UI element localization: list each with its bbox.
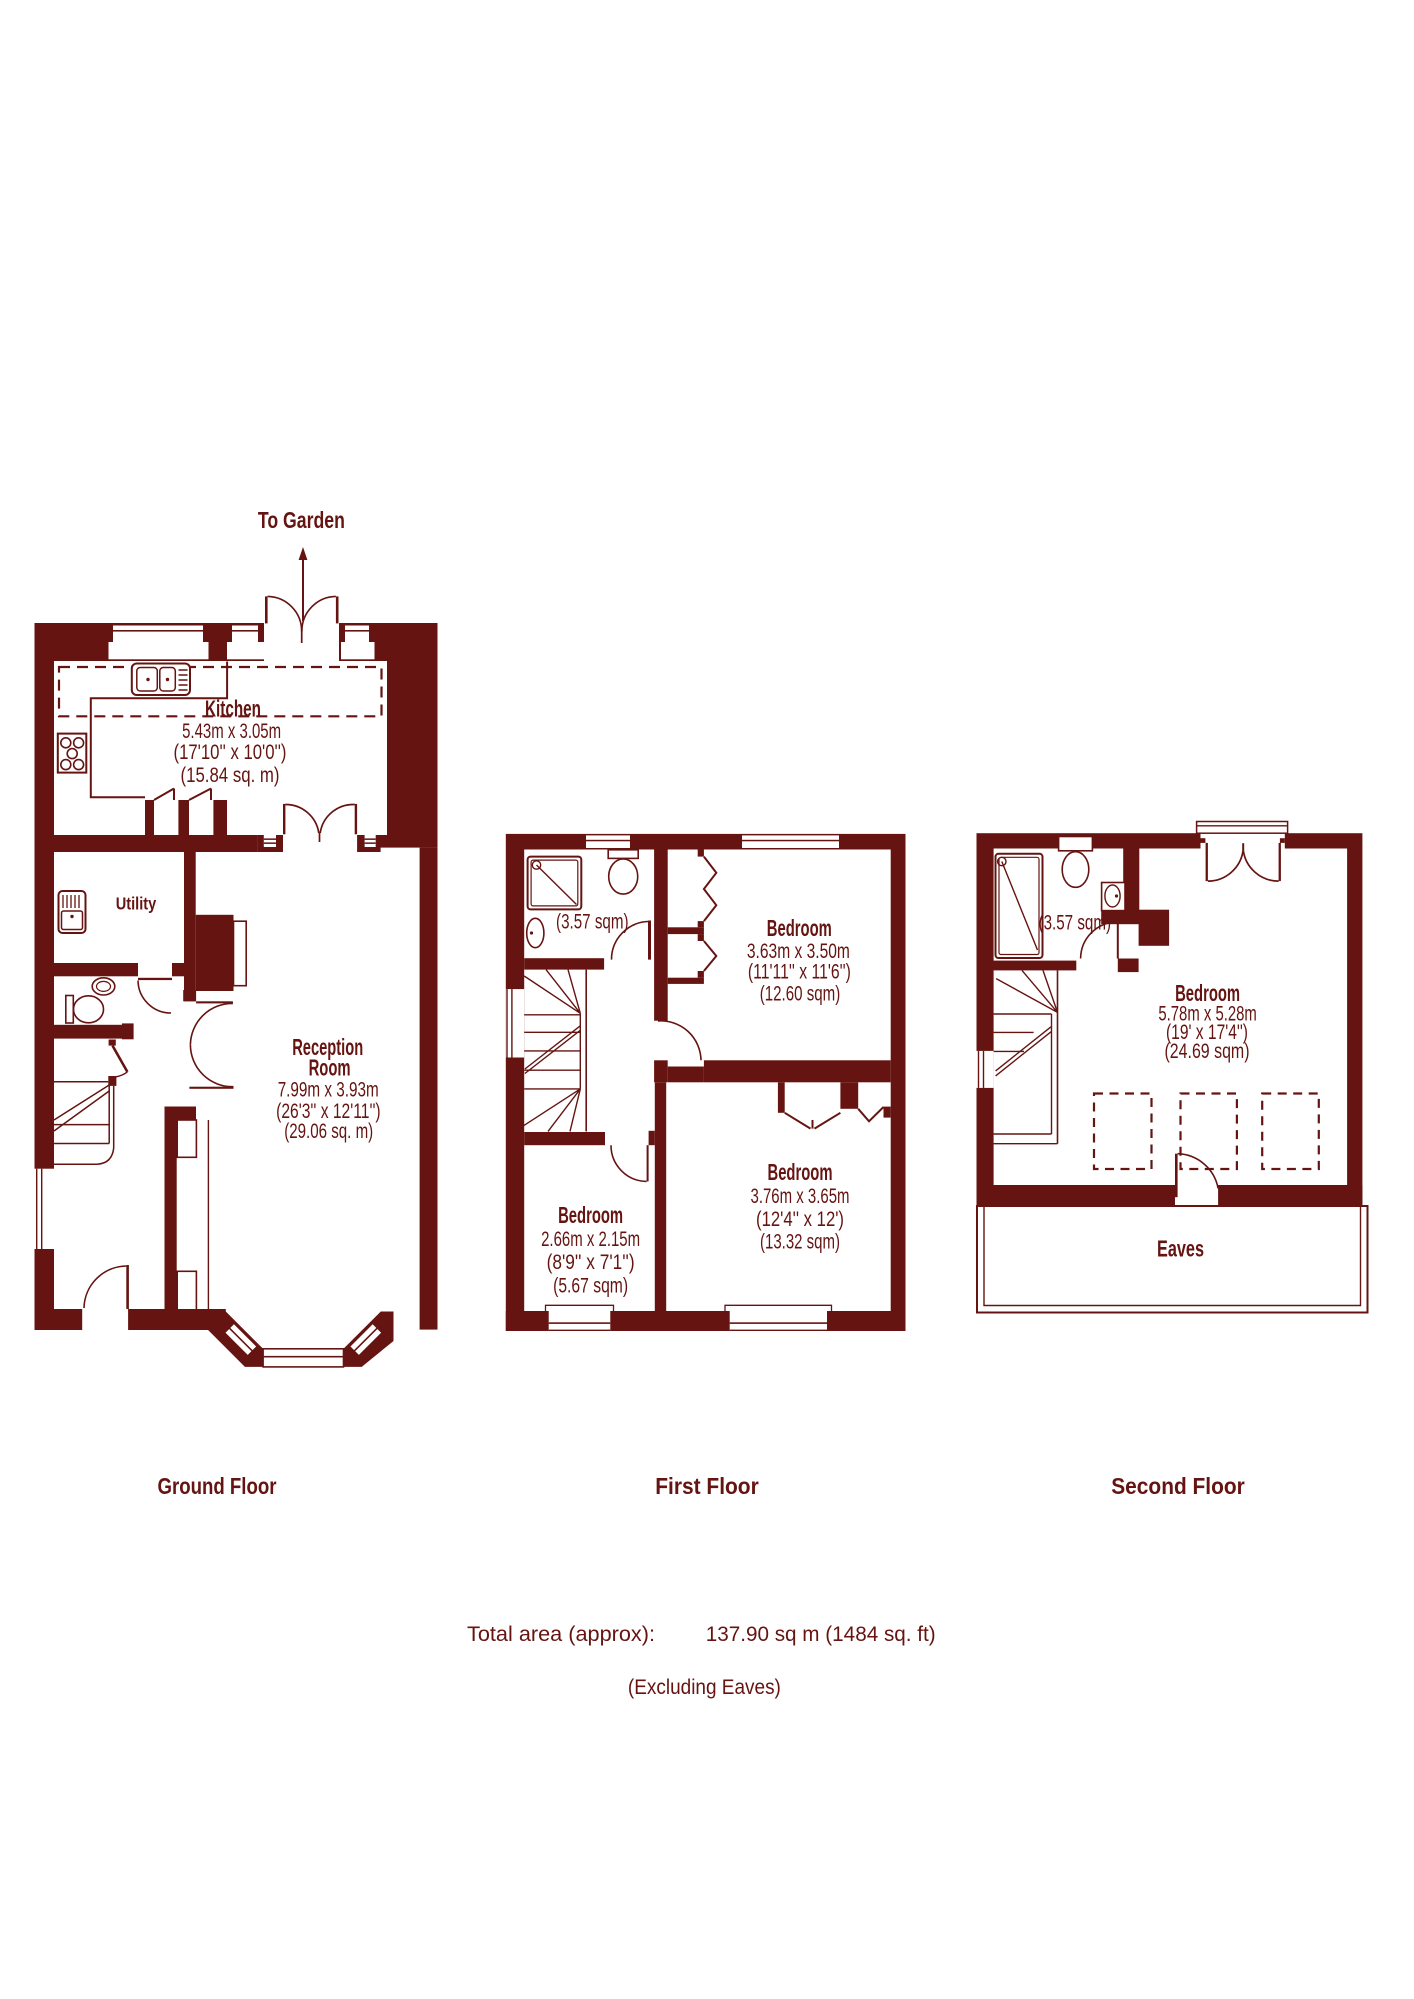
svg-text:(13.32 sqm): (13.32 sqm) <box>760 1231 840 1254</box>
svg-text:137.90 sq m (1484 sq. ft): 137.90 sq m (1484 sq. ft) <box>706 1622 936 1646</box>
svg-text:3.63m x 3.50m: 3.63m x 3.50m <box>747 940 850 963</box>
svg-text:Kitchen: Kitchen <box>205 696 261 722</box>
svg-text:(5.67 sqm): (5.67 sqm) <box>553 1275 628 1298</box>
svg-text:(12.60 sqm): (12.60 sqm) <box>760 983 841 1006</box>
svg-text:(8'9'' x 7'1''): (8'9'' x 7'1'') <box>547 1251 635 1274</box>
svg-text:Bedroom: Bedroom <box>558 1202 623 1228</box>
svg-text:Total area (approx):: Total area (approx): <box>467 1622 655 1646</box>
svg-text:(12'4'' x 12'): (12'4'' x 12') <box>756 1208 844 1231</box>
svg-text:(11'11'' x 11'6''): (11'11'' x 11'6'') <box>748 961 851 984</box>
svg-text:First Floor: First Floor <box>655 1473 759 1499</box>
svg-text:Room: Room <box>309 1055 351 1081</box>
svg-text:7.99m x 3.93m: 7.99m x 3.93m <box>278 1079 379 1102</box>
svg-text:Bedroom: Bedroom <box>768 1159 833 1185</box>
svg-text:(3.57 sqm): (3.57 sqm) <box>556 911 629 934</box>
svg-text:(17'10'' x 10'0''): (17'10'' x 10'0'') <box>174 741 287 764</box>
svg-text:(24.69 sqm): (24.69 sqm) <box>1165 1040 1250 1063</box>
svg-text:3.76m x 3.65m: 3.76m x 3.65m <box>751 1185 850 1208</box>
svg-text:Second Floor: Second Floor <box>1111 1473 1245 1499</box>
svg-text:Bedroom: Bedroom <box>767 915 832 941</box>
svg-text:5.43m x 3.05m: 5.43m x 3.05m <box>182 720 281 743</box>
svg-text:Utility: Utility <box>116 893 157 913</box>
svg-text:(3.57 sqm): (3.57 sqm) <box>1039 912 1112 935</box>
svg-text:2.66m x 2.15m: 2.66m x 2.15m <box>541 1228 640 1251</box>
svg-text:Eaves: Eaves <box>1157 1236 1204 1262</box>
svg-text:To Garden: To Garden <box>258 507 345 533</box>
svg-text:(15.84 sq. m): (15.84 sq. m) <box>181 764 280 787</box>
svg-text:Ground Floor: Ground Floor <box>158 1473 277 1499</box>
svg-text:(Excluding Eaves): (Excluding Eaves) <box>628 1675 781 1699</box>
svg-text:(29.06 sq. m): (29.06 sq. m) <box>284 1120 373 1143</box>
